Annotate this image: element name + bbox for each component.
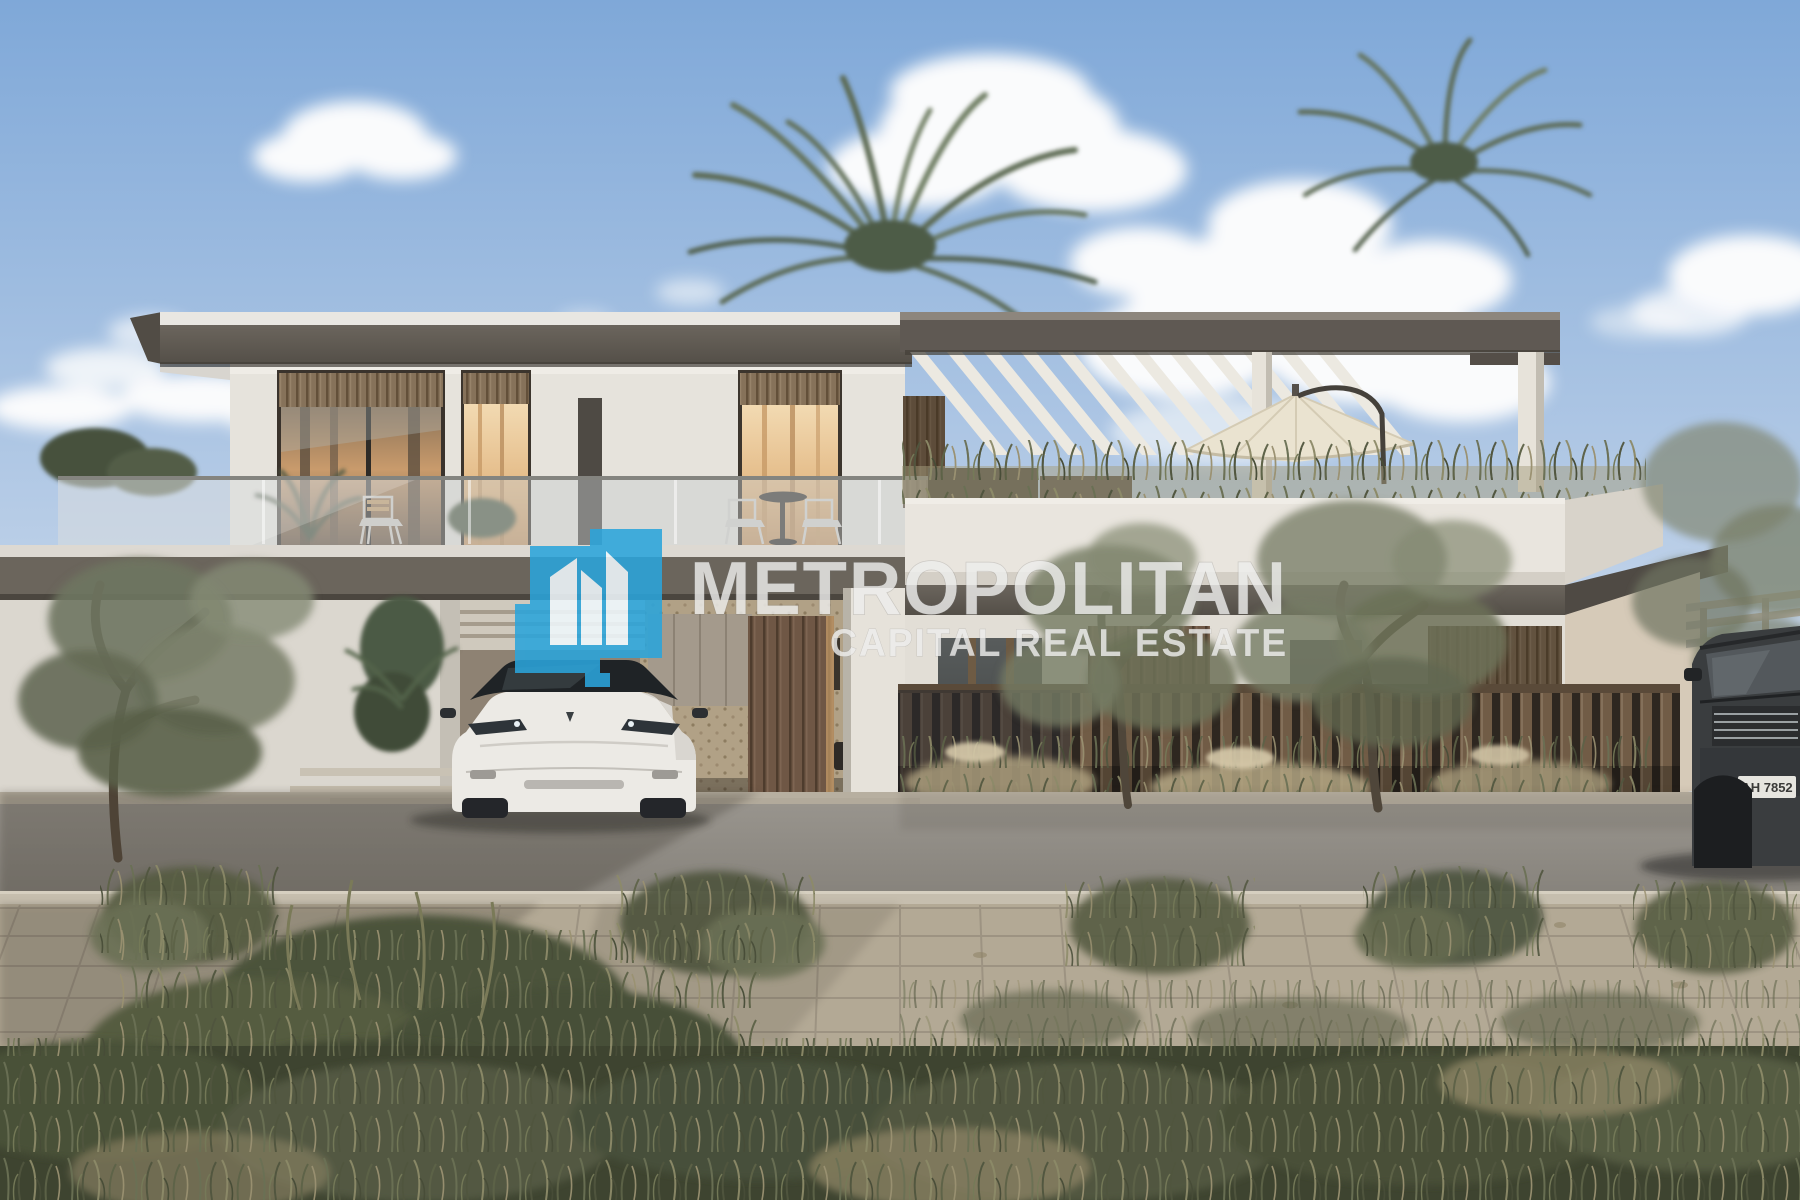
wood-valance — [463, 373, 529, 404]
entrance-door — [748, 616, 834, 812]
side-mirror — [692, 708, 708, 718]
roof-garden — [902, 440, 1646, 504]
wood-valance — [279, 373, 443, 407]
brand-subtitle-text: CAPITAL REAL ESTATE — [830, 622, 1288, 665]
side-mirror — [1684, 668, 1702, 681]
car-body — [452, 692, 696, 812]
glass-railing — [58, 476, 932, 546]
wheel — [1694, 775, 1752, 868]
wood-valance — [740, 373, 840, 405]
rendered-photo: AH 7852 — [0, 0, 1800, 1200]
suv-grille — [1712, 706, 1800, 746]
wheel — [462, 798, 508, 818]
brand-name-text: METROPOLITAN — [690, 546, 1288, 630]
wheel — [640, 798, 686, 818]
villa-scene: AH 7852 — [0, 0, 1800, 1200]
side-mirror — [440, 708, 456, 718]
